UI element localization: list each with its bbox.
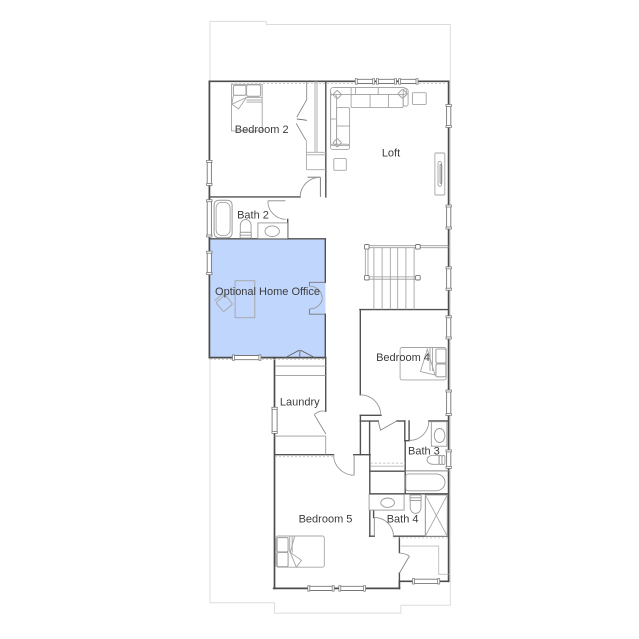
svg-text:Bedroom 2: Bedroom 2 (235, 124, 289, 136)
svg-text:Bath 3: Bath 3 (408, 446, 440, 458)
svg-text:Bath 4: Bath 4 (387, 514, 419, 526)
svg-text:Optional Home Office: Optional Home Office (215, 286, 320, 298)
svg-text:Bedroom 5: Bedroom 5 (299, 513, 353, 525)
svg-text:Bedroom 4: Bedroom 4 (376, 352, 430, 364)
svg-text:Loft: Loft (382, 148, 400, 160)
svg-text:Bath 2: Bath 2 (237, 210, 269, 222)
svg-text:Laundry: Laundry (280, 397, 320, 409)
